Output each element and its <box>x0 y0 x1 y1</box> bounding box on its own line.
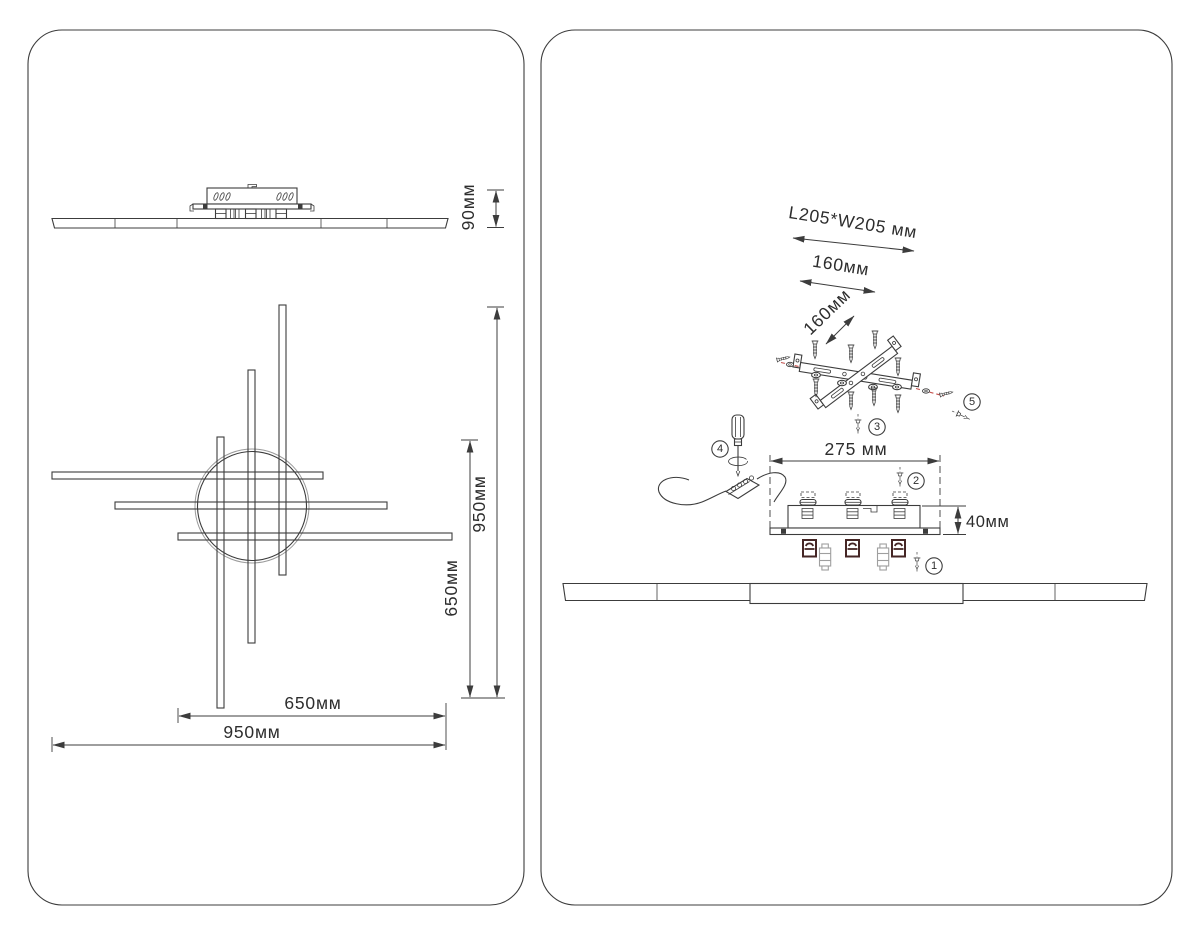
fixture-top-view: 950мм 650мм 650мм 950мм <box>52 305 505 752</box>
hole-spacing-dim-label: 160мм <box>811 251 871 280</box>
dimension-overall-width-950: 950мм <box>52 722 445 752</box>
light-bar-center-segment <box>750 584 963 604</box>
callout-step3: 3 <box>855 414 886 435</box>
screwdriver-icon <box>729 415 748 476</box>
light-bar-bottom <box>563 584 1147 604</box>
rod-horizontal-top <box>52 472 323 479</box>
box-base-plate <box>770 528 940 535</box>
wire-left <box>658 477 726 504</box>
callout-step5: 5 <box>951 394 981 423</box>
plate-size-dim-label: L205*W205 мм <box>787 202 919 242</box>
callout-step4: 4 <box>712 441 728 457</box>
mounting-exploded-view: L205*W205 мм 160мм 160мм <box>563 202 1147 603</box>
callout-step2: 2 <box>897 467 925 489</box>
box-width-dim-label: 275 мм <box>825 439 888 459</box>
callout-1-number: 1 <box>931 560 937 572</box>
terminal-posts <box>800 492 908 505</box>
overall-width-dim-label: 950мм <box>223 722 280 742</box>
box-height-dim-label: 40мм <box>966 513 1009 531</box>
rod-horizontal-bottom <box>178 533 452 540</box>
right-panel-frame <box>541 30 1172 905</box>
center-ring-inner <box>198 452 307 561</box>
rod-vertical-center <box>248 370 255 643</box>
rod-vertical-right <box>279 305 286 575</box>
left-panel-frame <box>28 30 524 905</box>
mount-clips-and-spacers <box>803 540 905 570</box>
assembly-instruction-sheet: 90мм 950мм 650мм 650мм <box>0 0 1200 933</box>
callout-4-number: 4 <box>717 443 723 455</box>
terminal-block <box>726 479 759 499</box>
wire-terminal-block-icon <box>658 473 786 505</box>
drawing-canvas: 90мм 950мм 650мм 650мм <box>0 0 1200 933</box>
callout-step1: 1 <box>914 552 943 574</box>
fixture-side-view: 90мм <box>52 184 504 231</box>
callout-2-number: 2 <box>913 475 919 487</box>
mount-plate-side <box>193 204 311 209</box>
center-ring-outer <box>195 449 309 563</box>
callout-5-number: 5 <box>969 396 975 408</box>
dimension-hole-spacing-160: 160мм <box>800 251 875 292</box>
callout-3-number: 3 <box>874 421 880 433</box>
driver-box-exploded <box>770 492 940 535</box>
rod-horizontal-dim-label: 650мм <box>284 693 341 713</box>
light-bar-side <box>52 219 448 229</box>
mounting-crossbar <box>792 336 920 412</box>
hole-spacing-dim-2-label: 160мм <box>799 285 854 339</box>
dimension-overall-height-950: 950мм <box>469 307 504 697</box>
rod-vertical-dim-label: 650мм <box>441 559 461 616</box>
rod-horizontal-middle <box>115 502 387 509</box>
dimension-plate-size: L205*W205 мм <box>787 202 919 251</box>
side-screw-right <box>916 389 953 398</box>
wire-right <box>757 473 786 502</box>
overall-height-dim-label: 950мм <box>469 475 489 532</box>
height-dim-label: 90мм <box>458 184 478 231</box>
dimension-rod-length-650-horizontal: 650мм <box>178 693 446 750</box>
dimension-height-90: 90мм <box>458 184 504 231</box>
rod-vertical-left <box>217 437 224 708</box>
clip-feet-icon <box>216 209 287 219</box>
dimension-hole-spacing-160-diagonal: 160мм <box>799 285 854 344</box>
